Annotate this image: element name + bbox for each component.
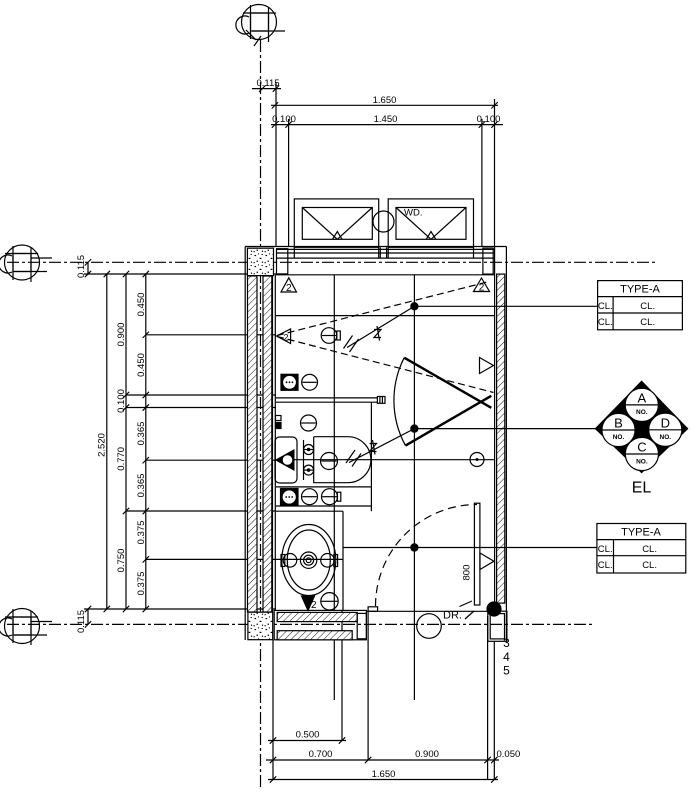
svg-text:0.050: 0.050	[497, 749, 521, 760]
svg-text:5: 5	[503, 664, 510, 678]
svg-text:CL.: CL.	[640, 317, 655, 328]
svg-text:CL.: CL.	[598, 544, 613, 555]
svg-text:0.100: 0.100	[272, 114, 296, 125]
svg-text:0.375: 0.375	[136, 521, 147, 545]
svg-text:0.375: 0.375	[136, 572, 147, 596]
svg-text:1.450: 1.450	[374, 114, 398, 125]
svg-text:DR.: DR.	[443, 610, 462, 622]
svg-text:NO.: NO.	[660, 434, 672, 441]
svg-text:800: 800	[462, 565, 473, 581]
svg-text:0.450: 0.450	[136, 353, 147, 377]
svg-text:EL: EL	[632, 480, 652, 497]
svg-text:0.450: 0.450	[136, 293, 147, 317]
svg-text:CL.: CL.	[598, 301, 613, 312]
svg-text:TYPE-A: TYPE-A	[620, 284, 660, 296]
svg-text:0.365: 0.365	[136, 422, 147, 446]
svg-text:0.750: 0.750	[116, 549, 127, 573]
svg-text:0.500: 0.500	[296, 730, 320, 741]
svg-text:NO.: NO.	[613, 434, 625, 441]
svg-text:D: D	[661, 415, 670, 430]
svg-text:4: 4	[503, 650, 510, 664]
svg-text:1.650: 1.650	[372, 769, 396, 780]
svg-text:CL.: CL.	[598, 317, 613, 328]
svg-text:3: 3	[503, 636, 510, 650]
svg-text:2: 2	[286, 283, 292, 294]
svg-text:1.650: 1.650	[373, 95, 397, 106]
svg-text:CL.: CL.	[598, 560, 613, 571]
svg-text:0.700: 0.700	[309, 749, 333, 760]
svg-text:0.100: 0.100	[116, 389, 127, 413]
svg-text:NO.: NO.	[636, 409, 648, 416]
svg-text:0.100: 0.100	[477, 114, 501, 125]
svg-text:2.520: 2.520	[97, 433, 108, 457]
svg-text:TYPE-A: TYPE-A	[621, 527, 661, 539]
svg-text:0.365: 0.365	[136, 474, 147, 498]
svg-text:0.115: 0.115	[256, 78, 279, 89]
svg-text:CL.: CL.	[642, 544, 657, 555]
svg-text:NO.: NO.	[636, 459, 648, 466]
svg-text:CL.: CL.	[640, 301, 655, 312]
svg-text:2: 2	[479, 283, 485, 294]
svg-text:2: 2	[283, 333, 288, 343]
svg-text:0.900: 0.900	[415, 749, 439, 760]
svg-text:0.900: 0.900	[116, 323, 127, 347]
svg-text:A: A	[637, 391, 646, 406]
svg-text:C: C	[637, 440, 646, 455]
svg-text:0.770: 0.770	[116, 447, 127, 471]
svg-text:0.115: 0.115	[76, 610, 87, 633]
svg-text:WD.: WD.	[404, 208, 422, 219]
svg-text:B: B	[614, 416, 623, 431]
svg-text:2: 2	[311, 600, 317, 611]
svg-text:0.115: 0.115	[76, 255, 87, 278]
svg-text:CL.: CL.	[642, 560, 657, 571]
